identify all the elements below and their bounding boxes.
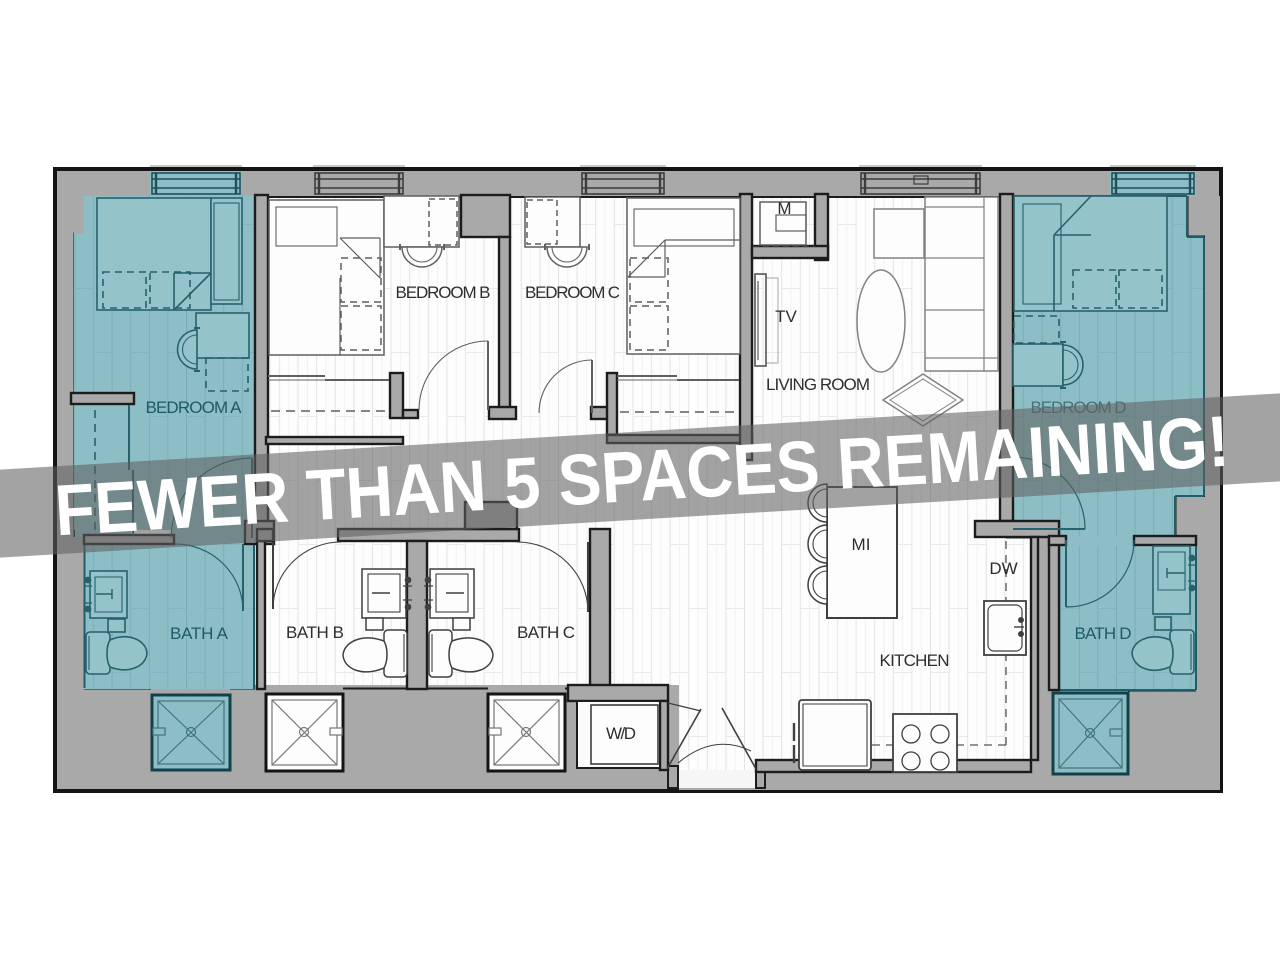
svg-text:MI: MI <box>852 535 871 554</box>
svg-text:BATH D: BATH D <box>1075 624 1132 643</box>
svg-text:M: M <box>777 199 791 218</box>
svg-text:BATH C: BATH C <box>517 623 575 642</box>
svg-text:TV: TV <box>775 307 797 326</box>
svg-text:BEDROOM A: BEDROOM A <box>146 398 243 417</box>
svg-text:W/D: W/D <box>606 724 636 743</box>
svg-text:BEDROOM C: BEDROOM C <box>525 283 620 302</box>
svg-text:DW: DW <box>989 559 1017 578</box>
svg-text:BATH B: BATH B <box>286 623 344 642</box>
svg-text:BEDROOM B: BEDROOM B <box>396 283 491 302</box>
svg-text:BATH A: BATH A <box>170 624 229 643</box>
svg-text:KITCHEN: KITCHEN <box>880 651 950 670</box>
svg-text:LIVING ROOM: LIVING ROOM <box>766 375 870 394</box>
